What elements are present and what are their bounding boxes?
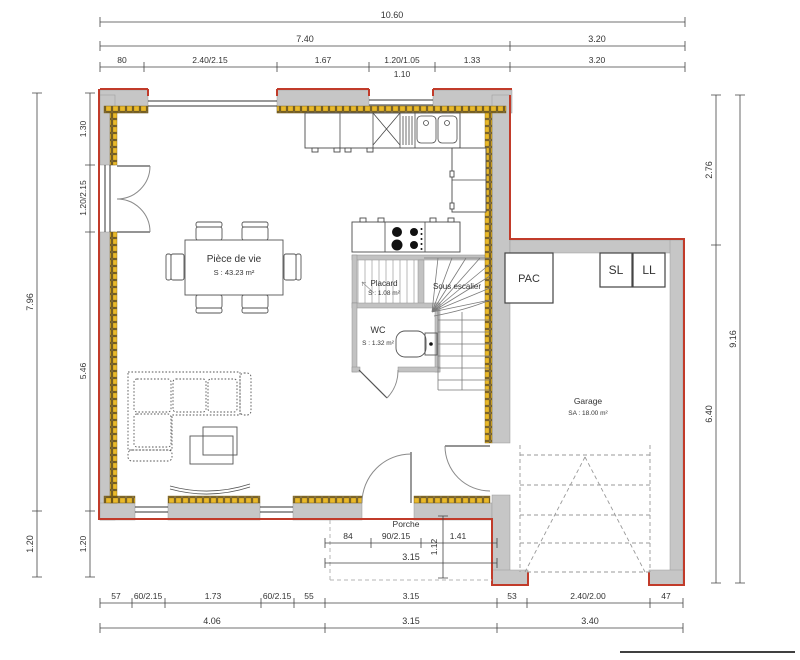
dim-label: 3.20 [589,55,606,65]
room-area-living: S : 43.23 m² [214,268,255,277]
french-door [105,165,150,232]
dim-label: 2.40/2.15 [192,55,228,65]
wc-door [359,370,398,398]
dim-label: 1.67 [315,55,332,65]
dim-label: 1.20/1.05 [384,55,420,65]
equipment-label-dryer: SL [609,263,624,277]
dim-label: 3.15 [402,552,420,562]
dim-label: 2.76 [704,161,714,179]
dim-label: 3.15 [403,591,420,601]
insulation-layer [104,106,506,503]
room-area-placard: S : 1.08 m² [368,290,401,297]
kitchen-counter [305,113,460,152]
dim-label: 55 [304,591,314,601]
dim-label: 5.46 [78,362,88,379]
kitchen-tall-units [450,148,486,212]
dim-label: 3.15 [402,616,420,626]
dim-label: 6.40 [704,405,714,423]
kitchen-island [352,218,460,252]
equipment-label-pac: PAC [518,273,540,285]
dim-bottom: 57 60/2.15 1.73 60/2.15 55 3.15 53 2.40/… [100,591,683,633]
dim-label-main-width: 7.40 [296,34,314,44]
coffee-tables [190,427,237,464]
room-label-wc: WC [371,325,386,335]
dim-label: 1.33 [464,55,481,65]
equipment-label-washer: LL [642,263,656,277]
dim-left: 7.96 1.20 1.30 1.20/2.15 5.46 1.20 [25,93,95,577]
dim-label: 7.96 [25,293,35,311]
dim-label-garage-width: 3.20 [588,34,606,44]
dim-label: 90/2.15 [382,531,411,541]
dim-label: 1.73 [205,591,222,601]
room-label-living: Pièce de vie [207,254,262,265]
dim-label: 80 [117,55,127,65]
dim-right: 2.76 6.40 9.16 [704,95,745,583]
dim-label: 60/2.15 [134,591,163,601]
dim-label: 60/2.15 [263,591,292,601]
room-area-garage: SA : 18.00 m² [568,410,608,417]
dim-label: 9.16 [728,330,738,348]
partition-walls [352,255,490,372]
room-label-garage: Garage [574,396,603,406]
dim-label: 1.20 [78,535,88,552]
room-label-porch: Porche [393,519,420,529]
dim-label-total-width: 10.60 [381,10,404,20]
dim-label: 57 [111,591,121,601]
window-top-kitchen [369,100,433,105]
porch-outline [330,520,492,580]
exterior-walls [100,90,683,585]
dim-label: 1.20/2.15 [78,180,88,216]
dim-label: 1.41 [450,531,467,541]
dim-label: 1.30 [78,120,88,137]
room-area-wc: S : 1.32 m² [362,340,395,347]
dim-label: 3.40 [581,616,599,626]
decor-arc [170,484,250,494]
room-label-placard: Placard [370,279,397,288]
window-top-large [148,101,277,106]
dim-label: 1.20 [25,535,35,553]
window-bottom-left [135,507,168,512]
entry-door [362,452,411,503]
dim-label: 47 [661,591,671,601]
floor-plan-canvas: 10.60 7.40 3.20 80 2.40/2.15 1.67 1.20/1… [0,0,800,660]
dim-label: 2.40/2.00 [570,591,606,601]
dim-label: 84 [343,531,353,541]
floor-plan-svg: 10.60 7.40 3.20 80 2.40/2.15 1.67 1.20/1… [0,0,800,660]
dim-label: 1.10 [394,69,411,79]
window-bottom-right [260,507,293,512]
garage-access-door [445,446,490,491]
dim-label: 1.12 [429,538,439,555]
garage-markings [520,445,650,572]
dim-label: 4.06 [203,616,221,626]
room-label-under-stairs: Sous escalier [433,282,481,291]
dim-label: 53 [507,591,517,601]
dim-top: 10.60 7.40 3.20 80 2.40/2.15 1.67 1.20/1… [100,10,685,79]
wc-toilet [396,331,437,357]
